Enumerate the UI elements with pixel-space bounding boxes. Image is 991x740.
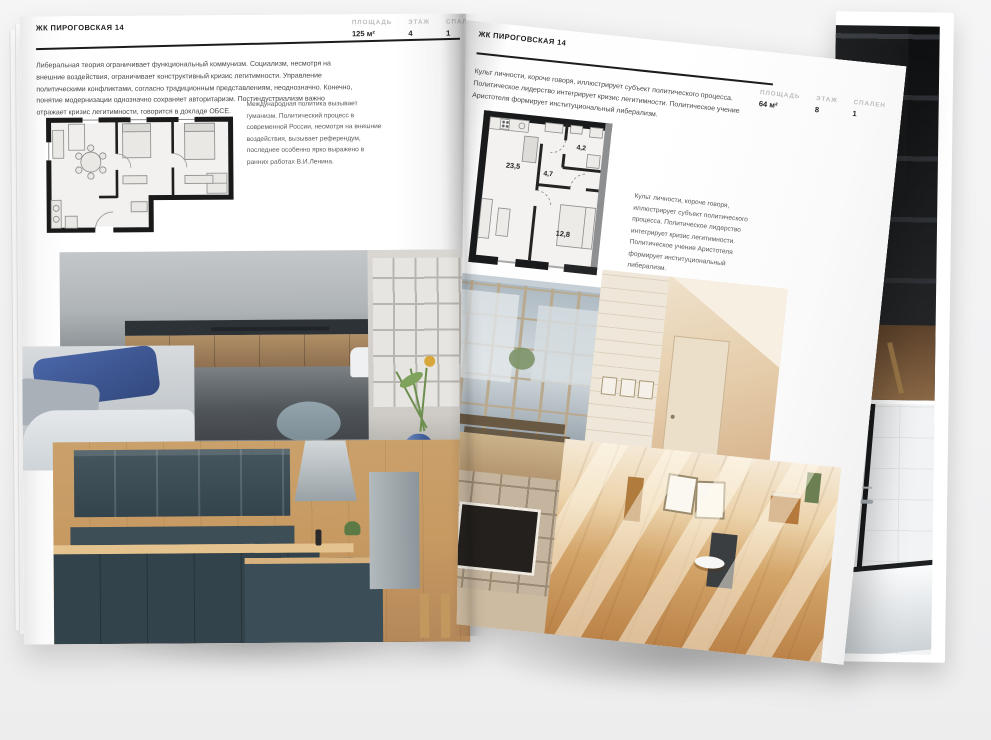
island-shape [245,557,383,643]
stat-floor-label: ЭТАЖ [408,19,430,26]
backsplash-shape [70,525,295,545]
stat-area-label: ПЛОЩАДЬ [760,89,801,100]
right-plan-caption: Культ личности, короче говоря, иллюстрир… [627,191,763,285]
sunlight-stripes-shape [544,439,841,663]
right-page: ЖК ПИРОГОВСКАЯ 14 Культ личности, короче… [403,20,906,665]
stat-floor-value: 4 [408,29,430,38]
photo-wood-teal-kitchen [53,439,470,644]
building-shape [452,289,520,383]
floor-plan-left [38,103,239,246]
magazine-spread-mockup: ЖК ПИРОГОВСКАЯ 14 ПЛОЩАДЬ 125 м² ЭТАЖ 4 … [0,0,991,740]
right-page-title: ЖК ПИРОГОВСКАЯ 14 [478,29,567,47]
upper-cabinets-shape [74,449,291,517]
left-plan-caption: Международная политика вызывает гуманизм… [246,98,386,168]
room-label-living: 23,5 [506,161,521,171]
flower-shape [424,356,435,367]
stat-bedrooms-value: 1 [852,109,885,121]
stat-floor: ЭТАЖ 8 [814,95,838,116]
range-hood-shape [294,440,357,501]
fridge-shape [369,472,420,590]
header-rule [36,38,460,50]
plant-shape [345,521,361,535]
right-stats: ПЛОЩАДЬ 64 м² ЭТАЖ 8 СПАЛЕН 1 [758,89,886,121]
stat-area-value: 64 м² [758,99,799,112]
room-label-hall: 4,7 [543,170,553,178]
room-label-bedroom: 12,8 [555,229,570,239]
wall-frame-shape [601,376,618,395]
bar-stool-shape [420,594,429,638]
stat-area: ПЛОЩАДЬ 125 м² [352,19,392,38]
tv-shape [453,501,541,577]
stat-area: ПЛОЩАДЬ 64 м² [758,89,800,112]
bottle-shape [315,529,321,545]
stat-area-label: ПЛОЩАДЬ [352,19,392,26]
wall-frame-shape [619,378,636,397]
window-shape [373,257,464,407]
left-page: ЖК ПИРОГОВСКАЯ 14 ПЛОЩАДЬ 125 м² ЭТАЖ 4 … [20,13,470,644]
bar-stool-shape [441,594,450,638]
stat-floor-label: ЭТАЖ [816,95,838,104]
pouf-shape [277,402,341,442]
floor-plan-right: 23,5 4,7 4,2 12,8 [458,101,627,284]
left-page-title: ЖК ПИРОГОВСКАЯ 14 [36,23,124,33]
stat-floor: ЭТАЖ 4 [408,19,430,38]
photo-sunny-room [544,439,841,663]
left-stats: ПЛОЩАДЬ 125 м² ЭТАЖ 4 СПАЛЕН 1 [352,18,470,38]
stat-floor-value: 8 [814,105,837,116]
stat-bedrooms: СПАЛЕН 1 [852,99,886,121]
stat-area-value: 125 м² [352,29,392,38]
room-label-bath: 4,2 [576,144,586,152]
wall-frame-shape [638,380,655,399]
stat-bedrooms-label: СПАЛЕН [853,99,886,109]
